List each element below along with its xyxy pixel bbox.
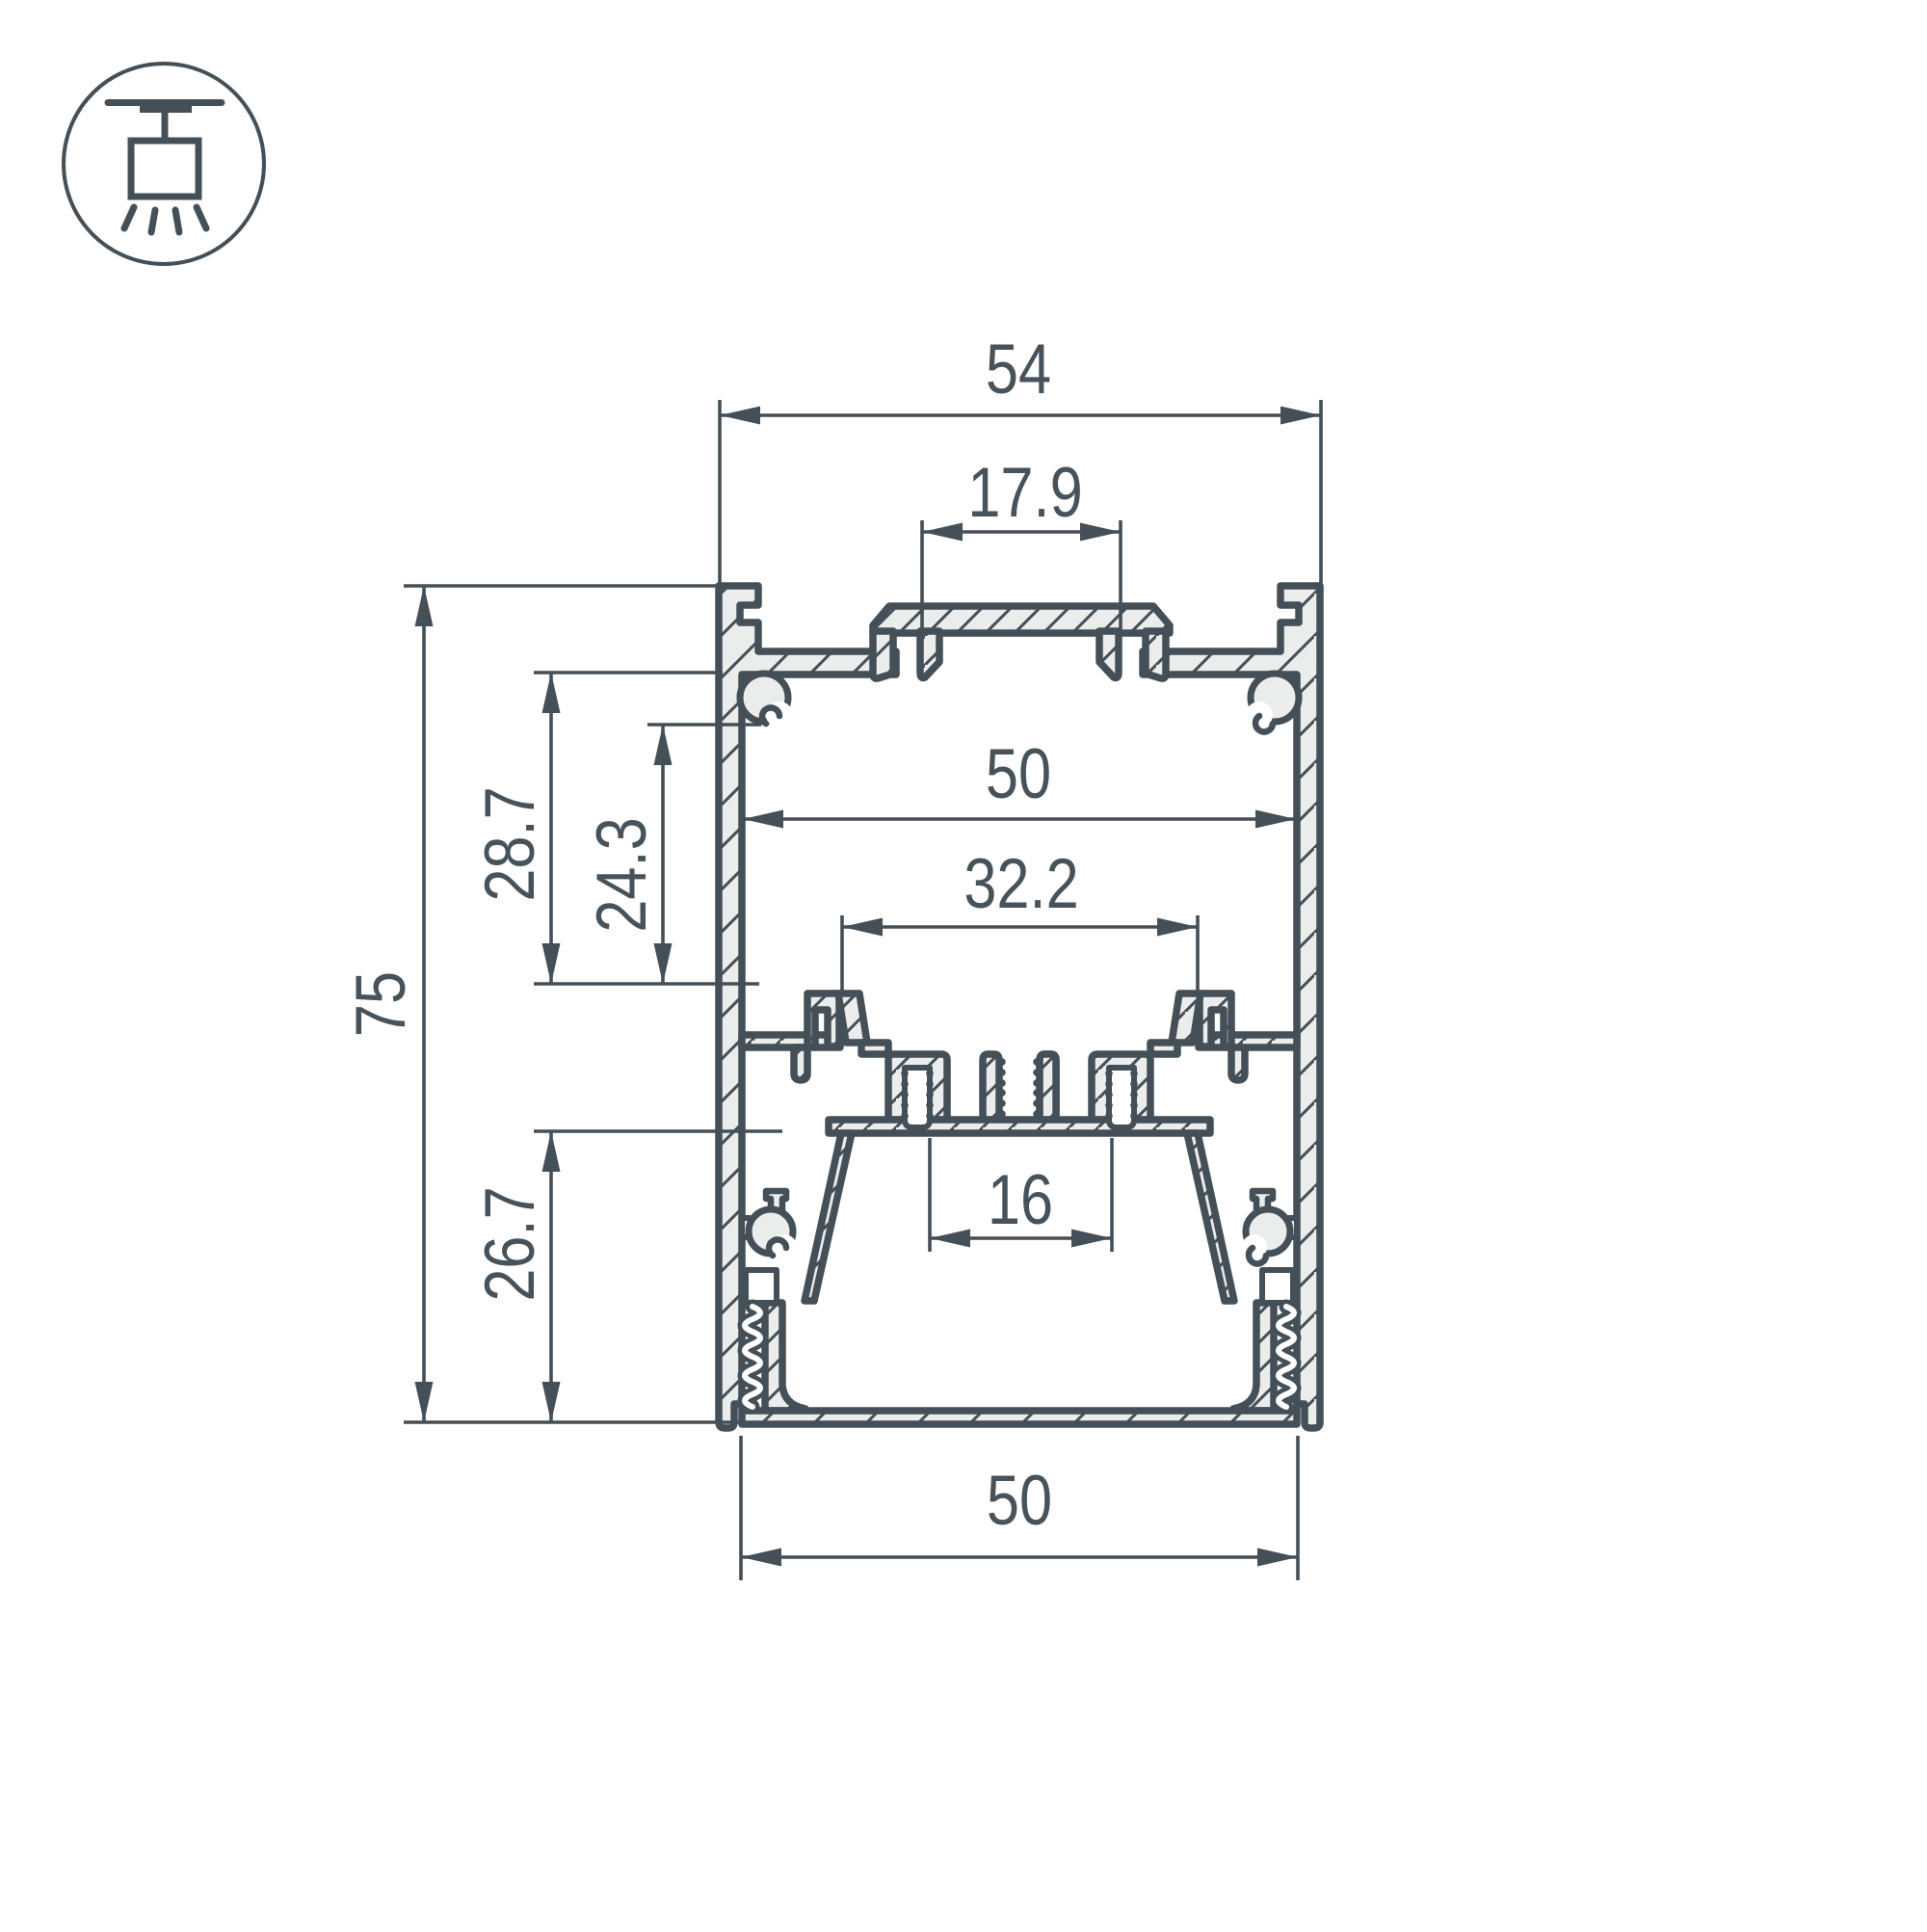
svg-text:24.3: 24.3 (583, 817, 661, 932)
svg-text:17.9: 17.9 (967, 454, 1082, 532)
svg-text:28.7: 28.7 (471, 786, 549, 901)
svg-text:75: 75 (342, 971, 420, 1037)
svg-text:26.7: 26.7 (471, 1186, 549, 1301)
svg-text:50: 50 (986, 735, 1051, 813)
svg-text:16: 16 (988, 1161, 1053, 1239)
svg-text:50: 50 (987, 1462, 1052, 1540)
svg-text:54: 54 (986, 331, 1051, 409)
svg-text:32.2: 32.2 (963, 845, 1078, 923)
